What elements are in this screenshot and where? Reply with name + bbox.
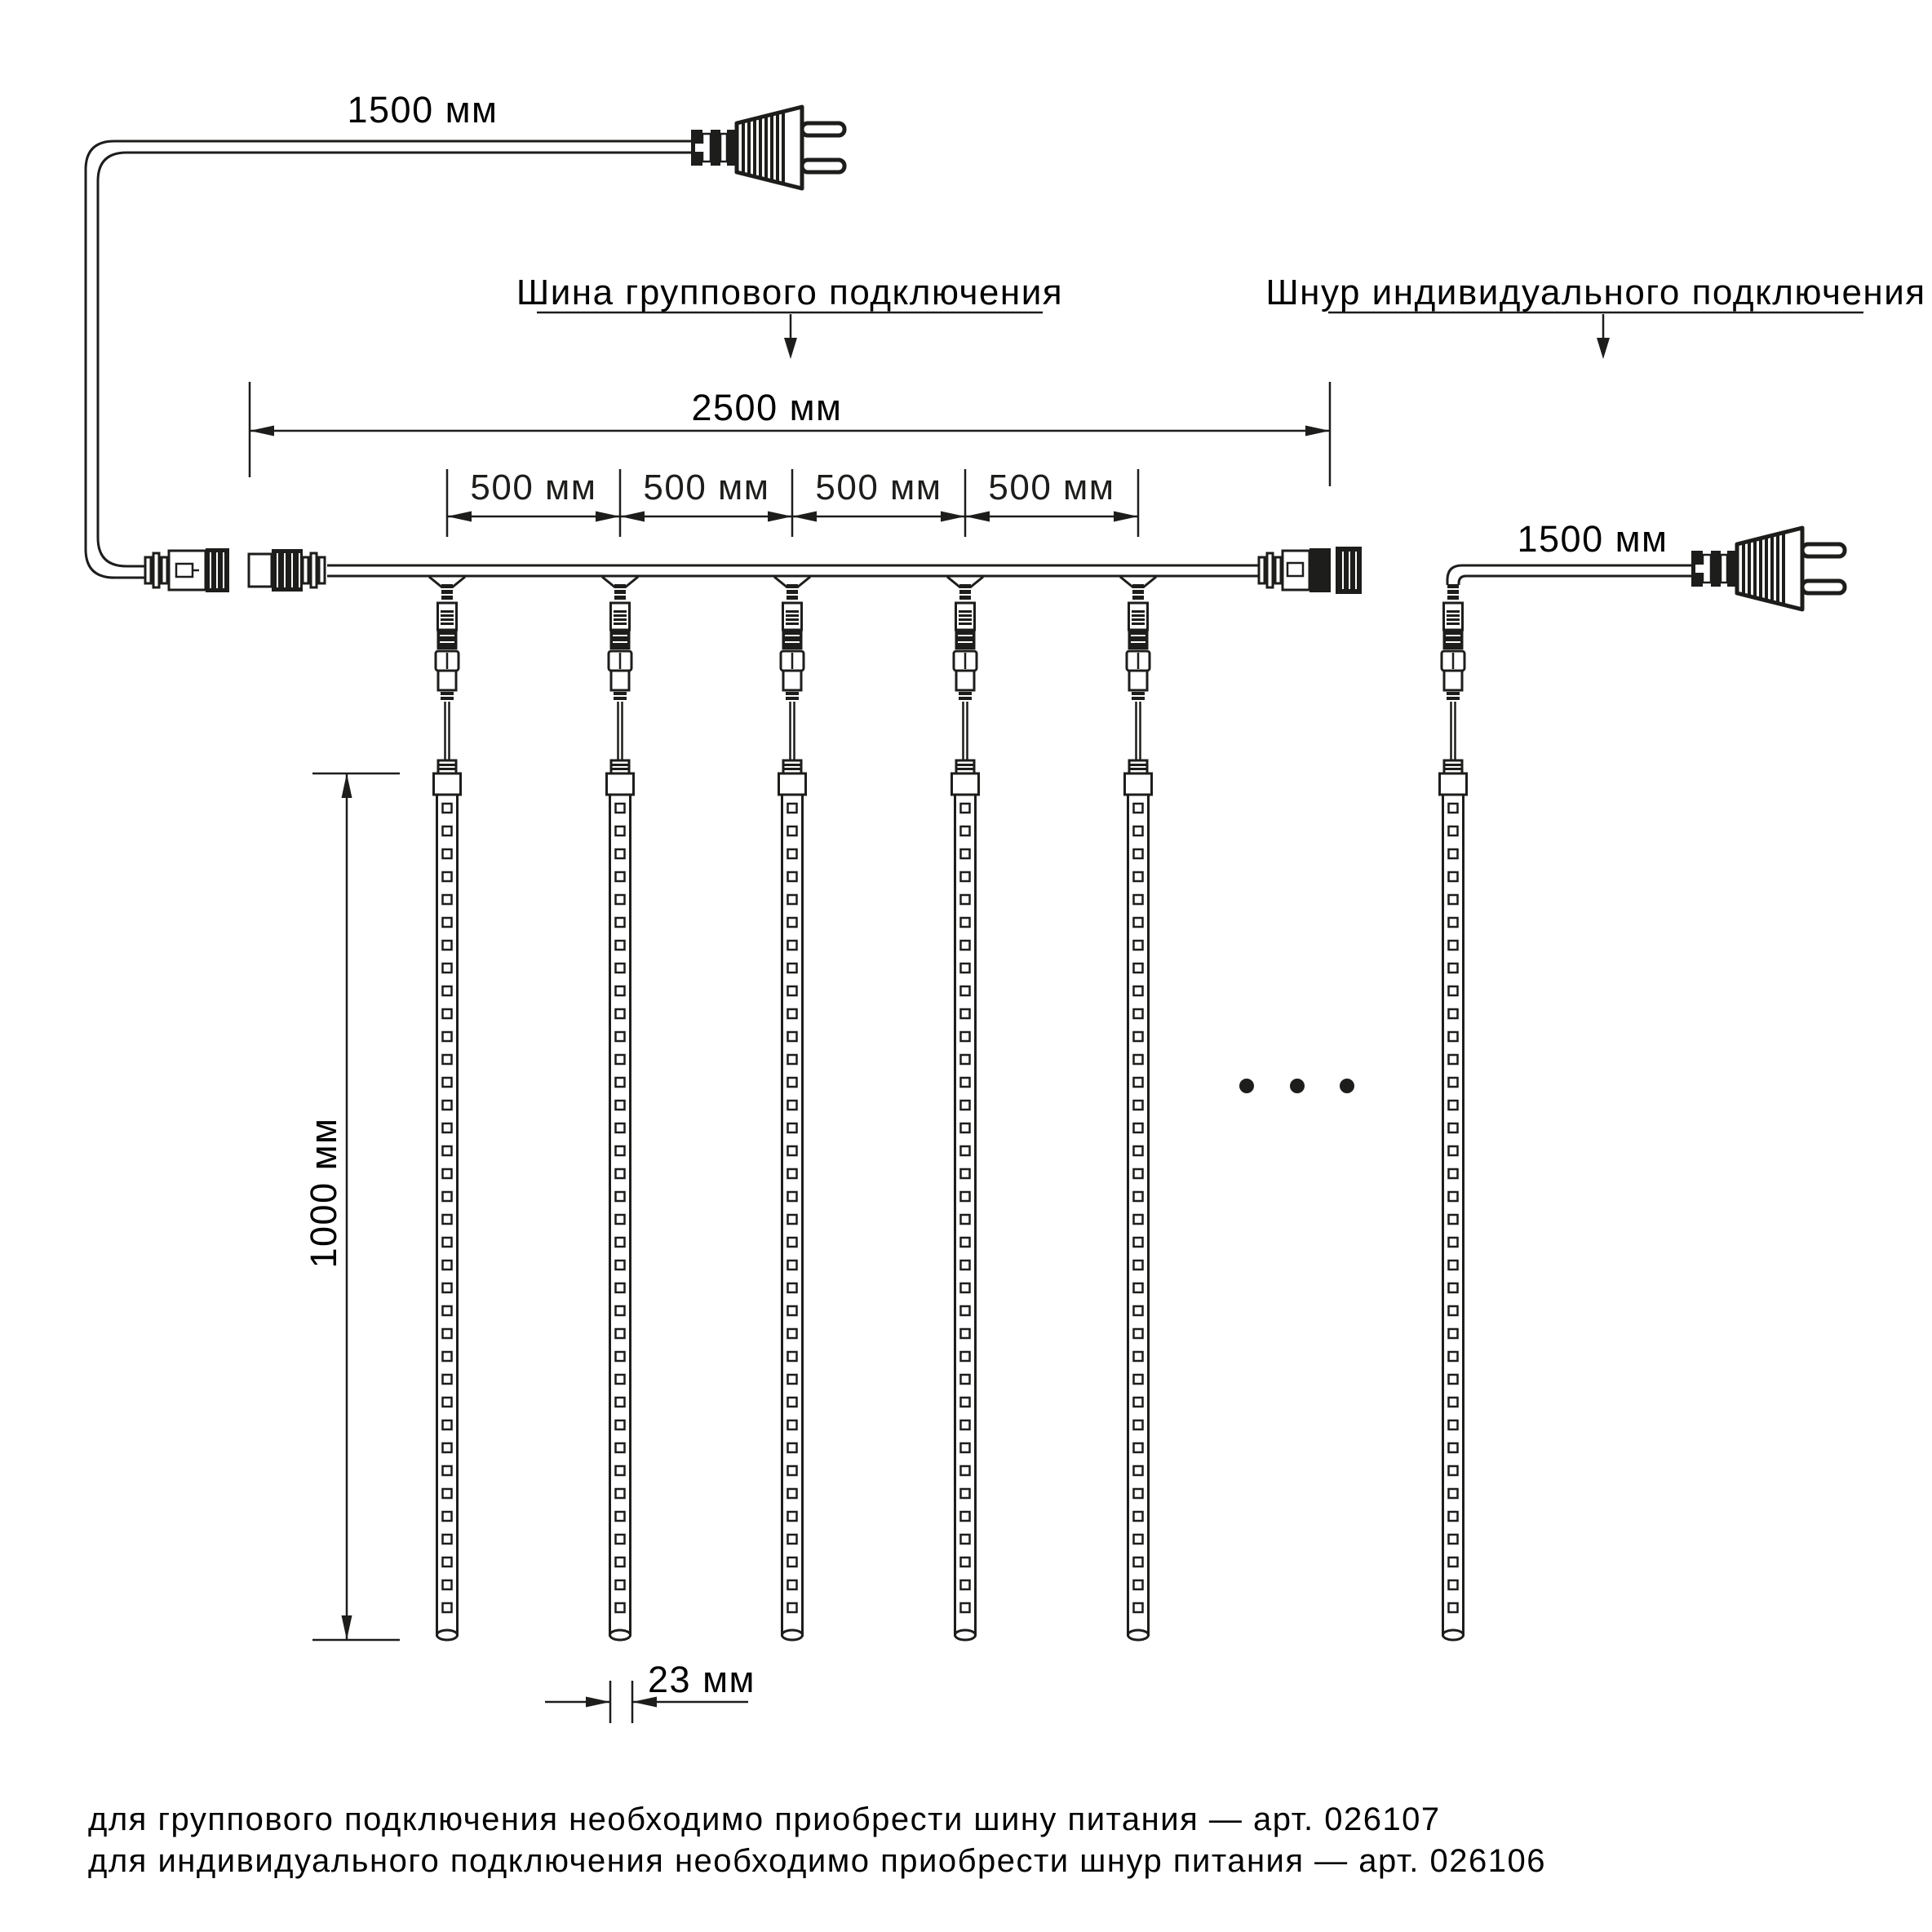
tube-gland-rib [1444, 768, 1462, 770]
tube-top-cap [779, 773, 806, 795]
tube-gland-rib [438, 768, 456, 770]
drop-connector-rib [1447, 692, 1460, 695]
led-pixel [443, 918, 452, 927]
tube-top-cap [1125, 773, 1152, 795]
led-pixel [616, 1192, 625, 1201]
led-pixel [788, 826, 797, 835]
diagram-page: 500 мм500 мм500 мм500 мм 1500 мм Шина гр… [0, 0, 1932, 1932]
led-pixel [1134, 1580, 1143, 1589]
led-pixel [616, 1580, 625, 1589]
led-pixel [1134, 849, 1143, 858]
drop-connector-rib-panel [1132, 623, 1145, 625]
male-connector-nut [272, 549, 303, 592]
male-connector-rings [319, 557, 325, 583]
led-pixel [1134, 895, 1143, 904]
dim-label-right-cord-length: 1500 мм [1518, 518, 1668, 560]
bus-drop-split [1143, 577, 1156, 587]
led-pixel [443, 964, 452, 973]
led-pixel [788, 1443, 797, 1452]
led-pixel [1449, 1535, 1458, 1544]
led-pixel [1449, 826, 1458, 835]
drop-connector-lower [611, 671, 629, 690]
bus-drop-split [797, 577, 810, 587]
led-pixel [961, 1055, 970, 1064]
drop-connector-nut [955, 630, 976, 649]
bus-end-rings [1259, 557, 1265, 583]
led-pixel [788, 1558, 797, 1566]
ellipsis-dot [1340, 1079, 1354, 1093]
led-pixel [961, 1420, 970, 1429]
led-pixel [1449, 849, 1458, 858]
dim-23-arrowhead [586, 1697, 610, 1708]
led-pixel [616, 895, 625, 904]
drop-connector-rib-panel [1132, 610, 1145, 613]
drop-connector-rib [787, 596, 798, 600]
tube-bottom-cap [782, 1630, 803, 1640]
led-pixel [1134, 1055, 1143, 1064]
led-pixel [1449, 1489, 1458, 1498]
bus-end-rings [1267, 553, 1273, 587]
led-pixel [788, 1169, 797, 1178]
led-pixel [443, 1306, 452, 1315]
led-pixel [1134, 804, 1143, 813]
drop-connector-nut [1443, 630, 1464, 649]
led-pixel [788, 804, 797, 813]
led-pixel [443, 1101, 452, 1110]
led-pixel [616, 1123, 625, 1132]
drop-connector-rib [441, 584, 453, 588]
drop-connector-rib [787, 590, 798, 594]
dim-1000-arrowhead [342, 773, 352, 798]
led-pixel [1134, 1192, 1143, 1201]
led-pixel [616, 1466, 625, 1475]
led-pixel [1134, 1306, 1143, 1315]
led-pixel [1134, 1489, 1143, 1498]
led-pixel [443, 1398, 452, 1407]
led-pixel [616, 1375, 625, 1384]
tube-gland-rib [956, 764, 974, 766]
dim-500-arrowhead [447, 512, 472, 522]
tube-top-cap [1440, 773, 1467, 795]
led-pixel [443, 1123, 452, 1132]
led-pixel [961, 1215, 970, 1224]
led-pixel [1449, 1192, 1458, 1201]
led-pixel [961, 1512, 970, 1521]
drop-connector-rib [441, 596, 453, 600]
drop-connector-rib [1447, 596, 1459, 600]
ellipsis-dot [1239, 1079, 1254, 1093]
drop-connector-rib-panel [441, 618, 454, 621]
drop-connector-rib [441, 697, 454, 700]
led-pixel [443, 1466, 452, 1475]
led-pixel [961, 849, 970, 858]
led-pixel [1449, 1078, 1458, 1087]
individual-cord-cable-line [1459, 576, 1691, 585]
led-pixel [961, 941, 970, 950]
led-pixel [616, 1101, 625, 1110]
drop-connector-rib [959, 590, 971, 594]
led-pixel [443, 1420, 452, 1429]
led-pixel [788, 1420, 797, 1429]
led-pixel [961, 1192, 970, 1201]
led-pixel [1134, 1238, 1143, 1247]
led-pixel [1134, 1398, 1143, 1407]
bus-drop-split [774, 577, 787, 587]
tube-gland [611, 760, 629, 773]
led-pixel [616, 986, 625, 995]
tube-gland-rib [1129, 764, 1147, 766]
led-pixel [788, 1329, 797, 1338]
labels-layer: 1500 мм Шина группового подключения Шнур… [88, 89, 1926, 1879]
dim-500-arrowhead [965, 512, 990, 522]
led-pixel [1134, 1078, 1143, 1087]
drop-connector-rib-panel [441, 614, 454, 617]
led-pixel [788, 1512, 797, 1521]
led-pixel [1449, 1375, 1458, 1384]
led-pixel [1449, 918, 1458, 927]
tube-gland [783, 760, 801, 773]
top-power-plug-prong [802, 160, 844, 172]
led-pixel [1134, 1123, 1143, 1132]
led-pixel [1449, 1146, 1458, 1155]
led-pixel [788, 1352, 797, 1361]
led-pixel [616, 1558, 625, 1566]
led-pixel [788, 1146, 797, 1155]
led-pixel [1449, 1443, 1458, 1452]
bus-drop-split [429, 577, 442, 587]
led-pixel [1134, 986, 1143, 995]
led-pixel [616, 849, 625, 858]
led-pixel [1134, 1032, 1143, 1041]
drop-connector-rib-panel [786, 623, 799, 625]
dim-label-segment: 500 мм [470, 467, 596, 507]
led-pixel [616, 1398, 625, 1407]
led-pixel [616, 1283, 625, 1292]
led-pixel [788, 918, 797, 927]
female-connector-rings [153, 553, 159, 587]
led-pixel [1134, 964, 1143, 973]
bus-drop-split [947, 577, 960, 587]
led-pixel [1134, 1169, 1143, 1178]
led-pixel [616, 804, 625, 813]
group-bus-caption-arrowhead [784, 338, 797, 359]
drop-connector-rib [1447, 590, 1459, 594]
led-pixel [616, 1261, 625, 1270]
led-pixel [788, 1101, 797, 1110]
drop-connector-rib-panel [1132, 614, 1145, 617]
drop-connector-rib-panel [441, 610, 454, 613]
drop-connector-rib [614, 697, 627, 700]
led-pixel [961, 1261, 970, 1270]
right-power-plug-prong [1802, 581, 1845, 593]
led-pixel [1449, 1101, 1458, 1110]
led-pixel [788, 1032, 797, 1041]
drop-connector-rib-panel [441, 623, 454, 625]
led-pixel [616, 1055, 625, 1064]
led-pixel [961, 986, 970, 995]
tube-top-cap [434, 773, 461, 795]
drop-connector-rib-panel [786, 618, 799, 621]
led-pixel [616, 964, 625, 973]
led-pixel [961, 1238, 970, 1247]
tube-gland-rib [783, 764, 801, 766]
led-pixel [1134, 1535, 1143, 1544]
dim-500-arrowhead [941, 512, 965, 522]
led-pixel [1449, 1055, 1458, 1064]
led-pixel [961, 1146, 970, 1155]
dim-1000-arrowhead [342, 1615, 352, 1640]
led-pixel [1134, 941, 1143, 950]
dim-label-tube-length: 1000 мм [303, 1118, 344, 1269]
drop-connector-rib-panel [959, 623, 972, 625]
led-pixel [788, 1489, 797, 1498]
led-pixel [788, 1375, 797, 1384]
led-pixel [443, 1512, 452, 1521]
tube-top-cap [952, 773, 979, 795]
drop-connector-rib-panel [959, 618, 972, 621]
drop-connector-rib-panel [614, 610, 627, 613]
led-pixel [1449, 1558, 1458, 1566]
footnote-group-bus: для группового подключения необходимо пр… [88, 1801, 1441, 1837]
led-pixel [961, 1580, 970, 1589]
led-pixel [788, 1398, 797, 1407]
tube-bottom-cap [955, 1630, 976, 1640]
dim-500-arrowhead [792, 512, 817, 522]
led-pixel [961, 1375, 970, 1384]
drop-connector-rib [1132, 584, 1144, 588]
led-pixel [961, 1558, 970, 1566]
led-pixel [443, 849, 452, 858]
led-pixel [1134, 1283, 1143, 1292]
drop-connector-nut [782, 630, 803, 649]
led-pixel [788, 1306, 797, 1315]
led-pixel [961, 1101, 970, 1110]
led-pixel [443, 804, 452, 813]
caption-individual-cord: Шнур индивидуального подключения [1265, 273, 1925, 312]
tube-gland-rib [611, 768, 629, 770]
led-pixel [961, 1009, 970, 1018]
bus-drop-split [1120, 577, 1133, 587]
drop-connector-rib-panel [1132, 618, 1145, 621]
led-pixel [961, 872, 970, 881]
led-pixel [1449, 1261, 1458, 1270]
led-pixel [443, 1238, 452, 1247]
led-pixel [1449, 1009, 1458, 1018]
led-pixel [443, 826, 452, 835]
drop-connector-rib [959, 596, 971, 600]
right-power-plug-strain-notch [1695, 565, 1707, 573]
drop-connector-rib-panel [959, 614, 972, 617]
led-pixel [443, 1603, 452, 1612]
led-pixel [961, 1123, 970, 1132]
led-pixel [788, 1283, 797, 1292]
led-pixel [1134, 1009, 1143, 1018]
drop-connector-rib [959, 584, 971, 588]
dim-label-tube-width: 23 мм [648, 1659, 756, 1700]
drop-connector-rib [786, 692, 799, 695]
led-pixel [961, 1169, 970, 1178]
led-pixel [788, 986, 797, 995]
led-pixel [1134, 1466, 1143, 1475]
tube-bottom-cap [1128, 1630, 1149, 1640]
dim-500-arrowhead [620, 512, 645, 522]
led-pixel [1449, 1580, 1458, 1589]
led-pixel [1449, 1466, 1458, 1475]
footnote-individual-cord: для индивидуального подключения необходи… [88, 1843, 1546, 1879]
bus-drop-split [625, 577, 638, 587]
led-pixel [1449, 1032, 1458, 1041]
led-pixel [1134, 1375, 1143, 1384]
drop-connector-rib-panel [1447, 610, 1460, 613]
dim-500-arrowhead [1114, 512, 1138, 522]
drop-connector-nut [610, 630, 631, 649]
drop-connector-rib [614, 692, 627, 695]
led-pixel [1134, 1512, 1143, 1521]
led-pixel [961, 895, 970, 904]
led-pixel [1449, 1215, 1458, 1224]
led-pixel [961, 918, 970, 927]
led-pixel [616, 1146, 625, 1155]
female-connector-latch [176, 564, 193, 577]
dim-2500-arrowhead [250, 426, 274, 436]
led-pixel [1134, 1329, 1143, 1338]
led-pixel [788, 964, 797, 973]
tube-gland-rib [611, 764, 629, 766]
top-cord-cable-line [98, 153, 691, 566]
led-pixel [788, 1009, 797, 1018]
led-pixel [1134, 918, 1143, 927]
right-power-plug-body [1737, 528, 1802, 609]
female-connector-rings [145, 557, 151, 583]
led-pixel [961, 1398, 970, 1407]
drop-connector-nut [437, 630, 458, 649]
led-pixel [1449, 941, 1458, 950]
line-art-layer: 500 мм500 мм500 мм500 мм [86, 107, 1863, 1723]
led-pixel [443, 1580, 452, 1589]
led-pixel [961, 804, 970, 813]
drop-connector-rib [787, 584, 798, 588]
dim-label-bus-total: 2500 мм [692, 387, 843, 428]
led-pixel [443, 1215, 452, 1224]
male-connector-tip [249, 554, 272, 587]
led-pixel [788, 872, 797, 881]
led-pixel [961, 1443, 970, 1452]
drop-connector-rib-panel [614, 623, 627, 625]
tube-gland [1444, 760, 1462, 773]
led-pixel [788, 1535, 797, 1544]
led-pixel [788, 1238, 797, 1247]
led-pixel [788, 1055, 797, 1064]
female-connector-rings [162, 557, 167, 583]
led-pixel [1449, 1352, 1458, 1361]
led-pixel [443, 1329, 452, 1338]
led-pixel [1449, 1238, 1458, 1247]
drop-connector-rib-panel [1447, 614, 1460, 617]
led-pixel [1449, 1283, 1458, 1292]
top-power-plug-prong [802, 123, 844, 135]
led-pixel [788, 1261, 797, 1270]
led-pixel [961, 826, 970, 835]
bus-drop-split [970, 577, 983, 587]
drop-connector-rib-panel [786, 610, 799, 613]
led-pixel [616, 918, 625, 927]
led-pixel [788, 1603, 797, 1612]
led-pixel [1134, 1443, 1143, 1452]
led-pixel [616, 1238, 625, 1247]
drop-connector-rib-panel [786, 614, 799, 617]
led-pixel [1134, 872, 1143, 881]
led-pixel [961, 1535, 970, 1544]
led-pixel [616, 1512, 625, 1521]
led-pixel [443, 1055, 452, 1064]
drop-connector-rib [959, 692, 972, 695]
drop-connector-rib [441, 590, 453, 594]
drop-connector-rib [1132, 697, 1145, 700]
led-pixel [616, 1306, 625, 1315]
drop-connector-rib-panel [1447, 618, 1460, 621]
led-pixel [961, 1603, 970, 1612]
tube-gland-rib [956, 768, 974, 770]
led-pixel [961, 1306, 970, 1315]
led-pixel [1134, 1603, 1143, 1612]
drop-connector-rib-panel [959, 610, 972, 613]
caption-group-bus: Шина группового подключения [516, 273, 1063, 312]
drop-connector-rib [441, 692, 454, 695]
drop-connector-rib [1132, 596, 1144, 600]
led-pixel [788, 1580, 797, 1589]
led-pixel [616, 1489, 625, 1498]
ellipsis-dot [1290, 1079, 1305, 1093]
led-pixel [1134, 1558, 1143, 1566]
led-pixel [1449, 986, 1458, 995]
drop-connector-rib [614, 584, 626, 588]
led-pixel [1134, 1146, 1143, 1155]
led-pixel [443, 1078, 452, 1087]
led-pixel [788, 849, 797, 858]
tube-bottom-cap [437, 1630, 458, 1640]
dim-2500-arrowhead [1305, 426, 1330, 436]
led-pixel [1449, 964, 1458, 973]
drop-connector-lower [1129, 671, 1147, 690]
male-connector-rings [303, 557, 308, 583]
individual-cord-caption-arrowhead [1597, 338, 1610, 359]
led-pixel [616, 1009, 625, 1018]
drop-connector-lower [438, 671, 456, 690]
led-pixel [961, 1032, 970, 1041]
tube-bottom-cap [1443, 1630, 1464, 1640]
led-pixel [961, 1466, 970, 1475]
led-pixel [1134, 1215, 1143, 1224]
led-pixel [443, 1283, 452, 1292]
led-pixel [616, 1215, 625, 1224]
top-power-plug-body [737, 107, 802, 188]
led-pixel [443, 1192, 452, 1201]
drop-connector-rib [614, 590, 626, 594]
led-pixel [443, 1375, 452, 1384]
led-pixel [443, 1146, 452, 1155]
led-pixel [961, 1352, 970, 1361]
led-pixel [443, 1443, 452, 1452]
led-pixel [1449, 1169, 1458, 1178]
right-power-plug-strain [1721, 555, 1727, 583]
top-power-plug-strain [720, 134, 727, 162]
led-pixel [443, 895, 452, 904]
led-pixel [788, 1466, 797, 1475]
led-pixel [443, 941, 452, 950]
dim-label-segment: 500 мм [643, 467, 769, 507]
tube-top-cap [607, 773, 634, 795]
led-pixel [961, 1329, 970, 1338]
